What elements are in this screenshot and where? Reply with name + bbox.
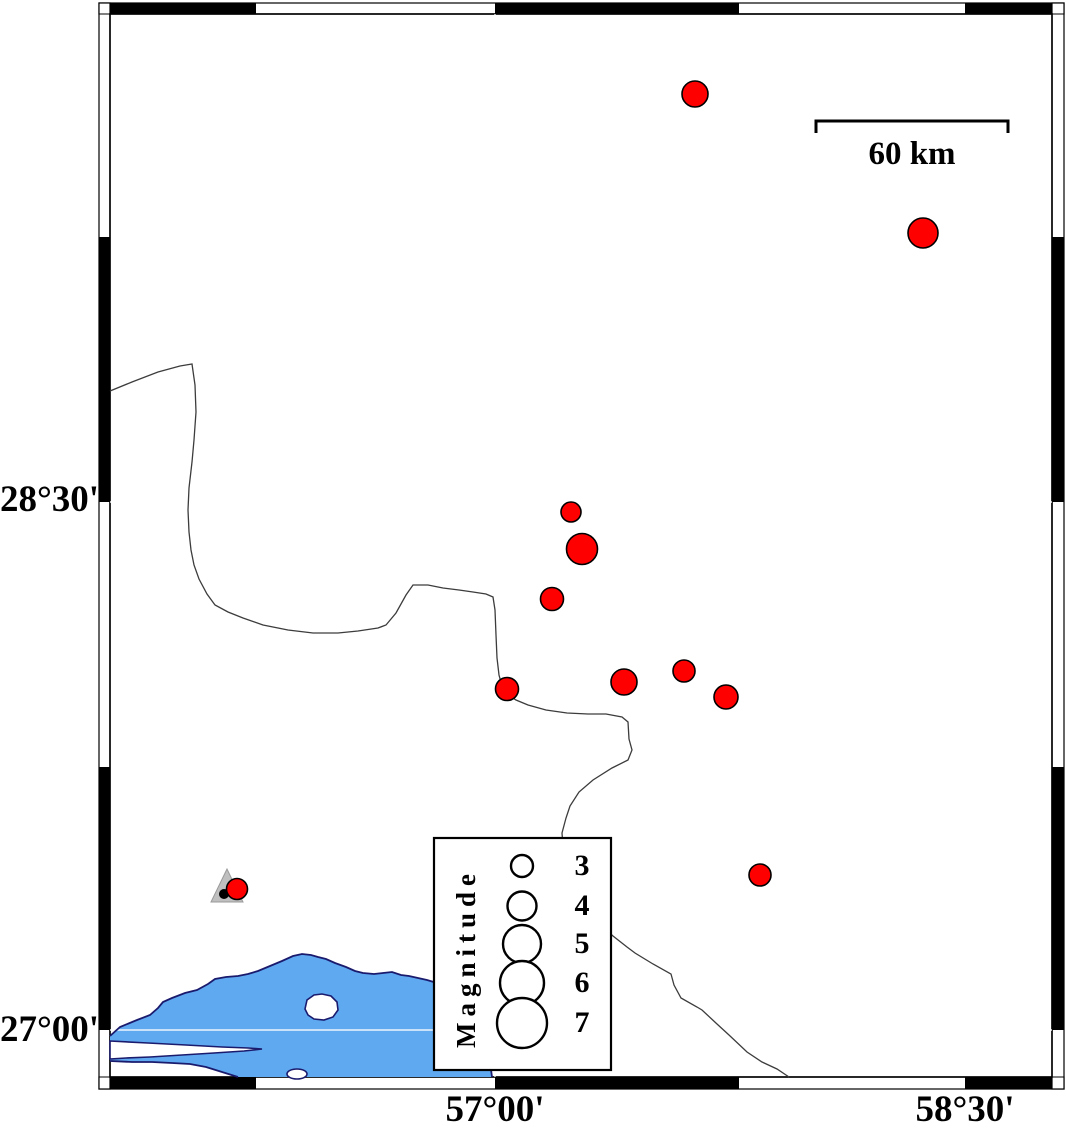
earthquake-marker	[673, 660, 695, 682]
earthquake-markers	[227, 81, 939, 900]
axis-label-lat-2700: 27°00'	[0, 1010, 92, 1050]
legend-size-circle	[508, 892, 537, 921]
island	[305, 994, 338, 1020]
earthquake-marker	[908, 218, 938, 248]
seismicity-map: 28°30' 27°00' 57°00' 58°30' 60 km Magnit…	[0, 0, 1066, 1128]
earthquake-marker	[496, 678, 519, 701]
legend-size-circle	[503, 925, 541, 963]
earthquake-marker	[682, 81, 708, 107]
legend-magnitude-label: 7	[558, 1003, 606, 1043]
earthquake-marker	[714, 685, 738, 709]
scale-bar-label: 60 km	[832, 136, 992, 172]
legend-size-circle	[497, 998, 547, 1048]
islet	[287, 1069, 307, 1079]
earthquake-marker	[541, 588, 564, 611]
earthquake-marker	[561, 502, 581, 522]
legend-magnitude-label: 3	[558, 846, 606, 886]
axis-label-lon-5700: 57°00'	[405, 1090, 585, 1128]
scale-bar	[816, 121, 1008, 133]
axis-label-lat-2830: 28°30'	[0, 480, 92, 520]
earthquake-marker	[567, 534, 598, 565]
legend-title: Magnitude	[451, 848, 481, 1068]
legend-magnitude-label: 4	[558, 886, 606, 926]
legend-magnitude-label: 6	[558, 963, 606, 1003]
earthquake-marker	[749, 864, 771, 886]
earthquake-marker	[227, 879, 248, 900]
axis-label-lon-5830: 58°30'	[875, 1090, 1055, 1128]
legend-size-circle	[511, 855, 533, 877]
earthquake-marker	[611, 669, 637, 695]
legend-magnitude-label: 5	[558, 924, 606, 964]
